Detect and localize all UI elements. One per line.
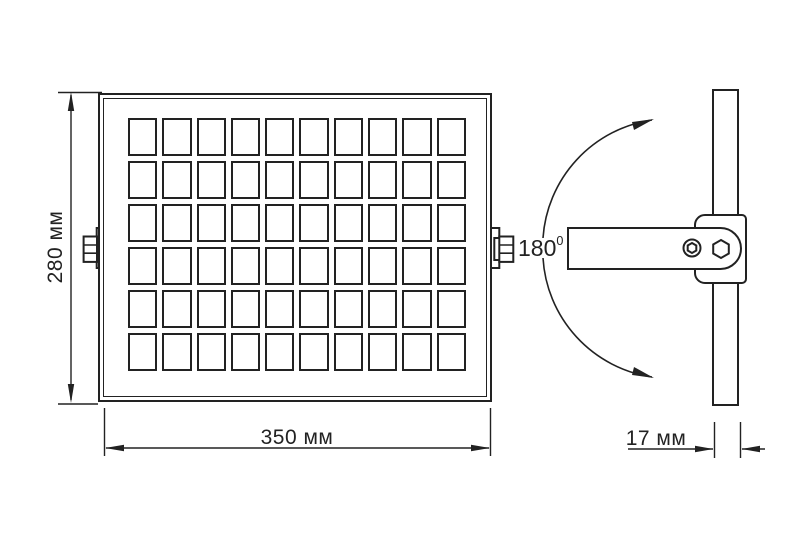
solar-cell	[265, 118, 294, 156]
solar-cell	[299, 161, 328, 199]
solar-cell	[265, 290, 294, 328]
solar-cell	[231, 204, 260, 242]
solar-cell	[368, 333, 397, 371]
solar-cell	[299, 247, 328, 285]
solar-cell	[128, 118, 157, 156]
solar-cell	[231, 161, 260, 199]
height-dimension-label: 280 мм	[44, 197, 68, 297]
solar-cell	[334, 161, 363, 199]
solar-cell	[265, 204, 294, 242]
solar-cell	[334, 118, 363, 156]
solar-cell	[265, 161, 294, 199]
solar-cell	[334, 204, 363, 242]
arrow-head	[68, 92, 74, 111]
rotation-angle-degree-sign: 0	[556, 234, 563, 248]
solar-cell	[128, 333, 157, 371]
arrow-head	[742, 446, 761, 452]
arrow-head	[632, 119, 654, 130]
solar-cell	[402, 161, 431, 199]
solar-cell	[334, 247, 363, 285]
solar-cell	[368, 247, 397, 285]
solar-cell	[368, 161, 397, 199]
arrow-head	[68, 384, 74, 403]
solar-cell	[437, 204, 466, 242]
solar-cell	[231, 333, 260, 371]
solar-cell	[231, 290, 260, 328]
solar-cell	[437, 161, 466, 199]
panel-front-view	[98, 93, 492, 402]
solar-cell	[231, 247, 260, 285]
mounting-bracket-arm	[567, 227, 742, 270]
solar-cell	[402, 247, 431, 285]
rotation-arc-up	[543, 119, 654, 238]
solar-cell	[402, 290, 431, 328]
solar-cell	[437, 333, 466, 371]
solar-cell	[334, 333, 363, 371]
solar-cell	[231, 118, 260, 156]
arrow-head	[105, 445, 124, 451]
solar-cell	[299, 290, 328, 328]
solar-cell	[128, 204, 157, 242]
solar-cell	[368, 118, 397, 156]
rotation-arc-down	[543, 258, 654, 378]
solar-cell	[437, 247, 466, 285]
technical-drawing: { "title": "Floodlight dimensional drawi…	[0, 0, 800, 548]
solar-cell	[128, 247, 157, 285]
solar-cell	[197, 204, 226, 242]
solar-cell	[162, 118, 191, 156]
solar-cell	[437, 118, 466, 156]
solar-cell	[162, 333, 191, 371]
solar-cell-grid	[128, 118, 466, 371]
arrow-head	[471, 445, 490, 451]
arrow-head	[632, 367, 654, 378]
solar-cell	[368, 204, 397, 242]
solar-cell	[128, 161, 157, 199]
solar-cell	[402, 333, 431, 371]
solar-cell	[402, 204, 431, 242]
solar-cell	[162, 290, 191, 328]
width-dimension-label: 350 мм	[237, 426, 357, 450]
solar-cell	[299, 333, 328, 371]
rotation-angle-value: 180	[518, 235, 556, 261]
solar-cell	[162, 161, 191, 199]
solar-cell	[265, 333, 294, 371]
solar-cell	[162, 247, 191, 285]
solar-cell	[368, 290, 397, 328]
solar-cell	[162, 204, 191, 242]
solar-cell	[197, 161, 226, 199]
depth-dimension-label: 17 мм	[606, 427, 706, 451]
solar-cell	[197, 290, 226, 328]
solar-cell	[197, 118, 226, 156]
solar-cell	[197, 333, 226, 371]
rotation-angle-label: 1800	[518, 235, 563, 262]
solar-cell	[128, 290, 157, 328]
solar-cell	[197, 247, 226, 285]
solar-cell	[299, 204, 328, 242]
solar-cell	[265, 247, 294, 285]
solar-cell	[437, 290, 466, 328]
solar-cell	[299, 118, 328, 156]
solar-cell	[402, 118, 431, 156]
solar-cell	[334, 290, 363, 328]
